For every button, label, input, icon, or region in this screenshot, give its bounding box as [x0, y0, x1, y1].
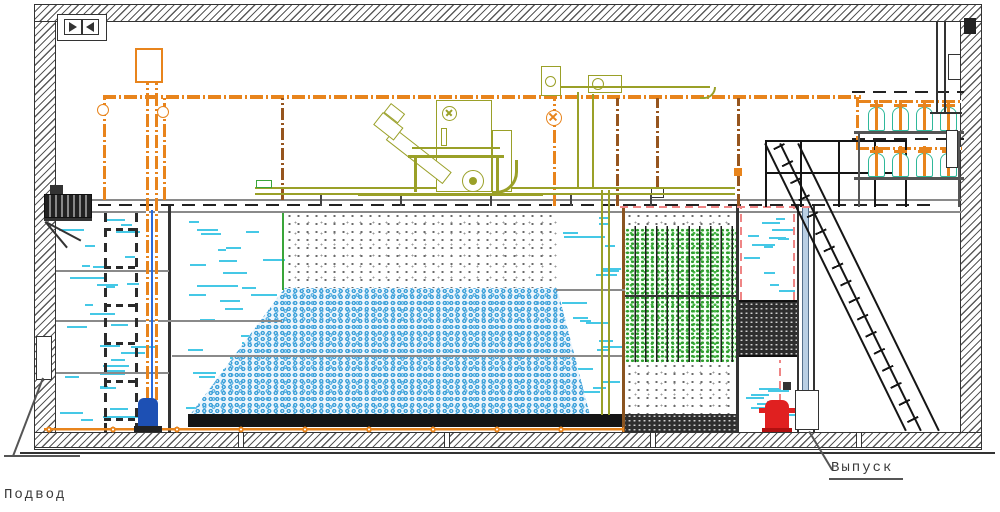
water-dash [100, 387, 116, 389]
blower-tee [918, 104, 931, 107]
water-dash [103, 365, 129, 367]
exhaust-duct [936, 22, 938, 112]
screen-base [44, 218, 92, 221]
air-receiver-tank [135, 48, 163, 83]
water-dash [770, 284, 779, 286]
walkway-post [490, 195, 492, 206]
water-dash [246, 231, 259, 233]
pump-hub [469, 177, 477, 185]
water-dash [106, 219, 125, 221]
water-dash [189, 294, 206, 296]
inlet-label-line: Подвод [4, 488, 77, 503]
bench-leg [414, 158, 417, 192]
floating-media-layer [285, 212, 557, 290]
water-dash [596, 274, 616, 276]
water-dash [190, 264, 206, 266]
clarifier-sludge-block [739, 300, 797, 357]
roof-slab [34, 4, 982, 22]
water-dash [562, 302, 588, 304]
blower-tee [918, 150, 931, 153]
inlet-label: Подвод сточных вод на очистку [4, 459, 77, 512]
screen-motor [50, 185, 63, 194]
water-dash [188, 349, 203, 351]
air-riser [281, 98, 284, 200]
water-dash [593, 387, 606, 389]
water-dash [111, 359, 125, 361]
water-dash [85, 245, 95, 247]
guide-channel-rung [104, 342, 138, 345]
slab-joint [650, 433, 656, 447]
water-dash [772, 229, 793, 231]
water-dash [90, 313, 115, 315]
guide-channel-rung [104, 304, 138, 307]
water-dash [193, 372, 217, 374]
water-dash [603, 268, 622, 270]
water-dash [764, 246, 773, 248]
wall-cabinet [946, 130, 958, 168]
pump-base [134, 426, 162, 432]
tie-line [556, 289, 625, 291]
air-diffuser-pipe [44, 426, 624, 433]
water-dash [110, 408, 128, 410]
right-wall [960, 21, 982, 433]
shelf-leg [858, 134, 860, 207]
walkway-post [320, 195, 322, 206]
walkway-post [570, 195, 572, 206]
hoist-pulley [545, 76, 556, 87]
wall-anchor [964, 18, 976, 34]
water-dash [759, 388, 782, 390]
water-dash [744, 257, 760, 259]
water-dash [776, 218, 785, 220]
water-dash [752, 244, 774, 246]
guide-rail [601, 190, 603, 415]
ground-line [20, 452, 995, 454]
water-dash [242, 287, 256, 289]
blower-tee [894, 104, 907, 107]
walkway-post [400, 195, 402, 206]
tie-line [56, 320, 282, 322]
water-dash [82, 265, 90, 267]
ventilation-unit [57, 14, 107, 41]
hose-connection [256, 180, 272, 188]
exhaust-duct [944, 22, 946, 112]
shelf-leg [958, 134, 960, 207]
hoist-cable [577, 92, 579, 188]
level-line-pink [620, 206, 814, 208]
fan-blade-icon [86, 22, 94, 32]
water-dash [197, 285, 214, 287]
equipment-base [358, 194, 543, 196]
biofilter-bottom-gravel [625, 362, 736, 414]
valve-icon [157, 106, 169, 118]
water-dash [121, 352, 146, 354]
guide-channel-rung [104, 418, 138, 421]
water-dash [580, 320, 591, 322]
biofilter-mid-line [625, 295, 736, 297]
water-dash [81, 419, 93, 421]
junction-box [948, 54, 961, 80]
fan-axis [81, 20, 83, 34]
platform-post [838, 140, 840, 207]
blower-shelf-2 [854, 177, 964, 180]
blower-tee [894, 150, 907, 153]
fan-blade-icon [69, 22, 77, 32]
motor-pulley [592, 78, 604, 90]
air-main-pipe [103, 95, 861, 99]
bench-top [408, 155, 504, 158]
water-dash [573, 317, 588, 319]
inlet-underline [4, 455, 80, 457]
guide-channel-rung [104, 266, 138, 269]
water-dash [189, 221, 199, 223]
fan-housing [64, 19, 99, 35]
duct-support [930, 112, 962, 114]
water-dash [746, 397, 764, 399]
tank-rim-bottom [56, 211, 962, 213]
water-dash [748, 235, 760, 237]
water-dash [125, 256, 136, 258]
blower-tee [870, 104, 883, 107]
walkway-post [650, 195, 652, 206]
water-dash [197, 229, 218, 231]
cad-drawing-canvas: Подвод сточных вод на очистку Выпуск [0, 0, 1000, 512]
water-dash [213, 285, 238, 287]
bench-shelf [412, 147, 500, 149]
water-dash [121, 224, 132, 226]
media-retainer [282, 212, 284, 290]
water-dash [201, 233, 221, 235]
pipe-fitting [734, 168, 742, 176]
guide-rail [608, 190, 610, 415]
water-dash [226, 247, 241, 249]
air-riser [656, 98, 659, 188]
inlet-wall-sleeve [36, 336, 52, 380]
water-dash [97, 284, 118, 286]
air-riser [616, 98, 619, 206]
water-dash [67, 326, 87, 328]
valve-icon [97, 104, 109, 116]
water-dash [60, 412, 83, 414]
water-dash [762, 222, 781, 224]
water-dash [223, 272, 247, 274]
outlet-pipe-base [795, 390, 819, 430]
valve-icon [546, 110, 562, 126]
water-dash [219, 260, 238, 262]
slab-joint [856, 433, 862, 447]
water-dash [65, 376, 80, 378]
water-dash [251, 294, 277, 296]
guide-channel-rail [104, 210, 107, 432]
hoist-cable [592, 94, 594, 188]
biofilter-underdrain [622, 414, 739, 432]
outlet-valve [783, 382, 791, 390]
water-dash [86, 277, 104, 279]
drain-pump-arms [759, 408, 795, 413]
water-dash [116, 324, 128, 326]
air-riser [155, 83, 158, 400]
guide-channel-rung [104, 380, 138, 383]
outlet-pipe [802, 208, 809, 390]
outlet-label: Выпуск [831, 461, 893, 476]
tank-divider-1 [168, 206, 171, 432]
water-dash [563, 232, 578, 234]
drain-pump [765, 400, 789, 430]
water-dash [603, 381, 621, 383]
water-dash [218, 249, 226, 251]
water-dash [85, 304, 93, 306]
blower-tee [870, 150, 883, 153]
outlet-underline [829, 478, 903, 480]
floor-slab [34, 432, 982, 448]
level-line-pink [793, 208, 795, 300]
water-dash [778, 238, 789, 240]
guide-channel-rail [135, 210, 138, 432]
water-dash [106, 286, 115, 288]
slab-joint [444, 433, 450, 447]
level-line-pink [740, 208, 742, 300]
air-riser [737, 98, 740, 206]
air-riser [146, 83, 149, 400]
cabinet-slot [441, 128, 447, 146]
water-dash [70, 277, 88, 279]
pump-discharge-pipe [151, 210, 153, 398]
water-dash [225, 308, 242, 310]
drain-pump-base [762, 428, 792, 432]
platform-rail [765, 140, 907, 142]
tie-line [172, 355, 622, 357]
slab-joint [238, 433, 244, 447]
biofilter-left-wall [622, 206, 625, 432]
guide-channel-rung [104, 228, 138, 231]
hoist-beam [560, 86, 710, 88]
duct-dash-line [852, 91, 964, 93]
inlet-screen-box [44, 194, 92, 218]
water-dash [764, 272, 775, 274]
water-dash [220, 300, 241, 302]
biofilter-right-wall [736, 206, 739, 432]
water-dash [199, 376, 216, 378]
water-dash [564, 236, 590, 238]
fan-icon [442, 106, 457, 121]
water-dash [751, 394, 770, 396]
